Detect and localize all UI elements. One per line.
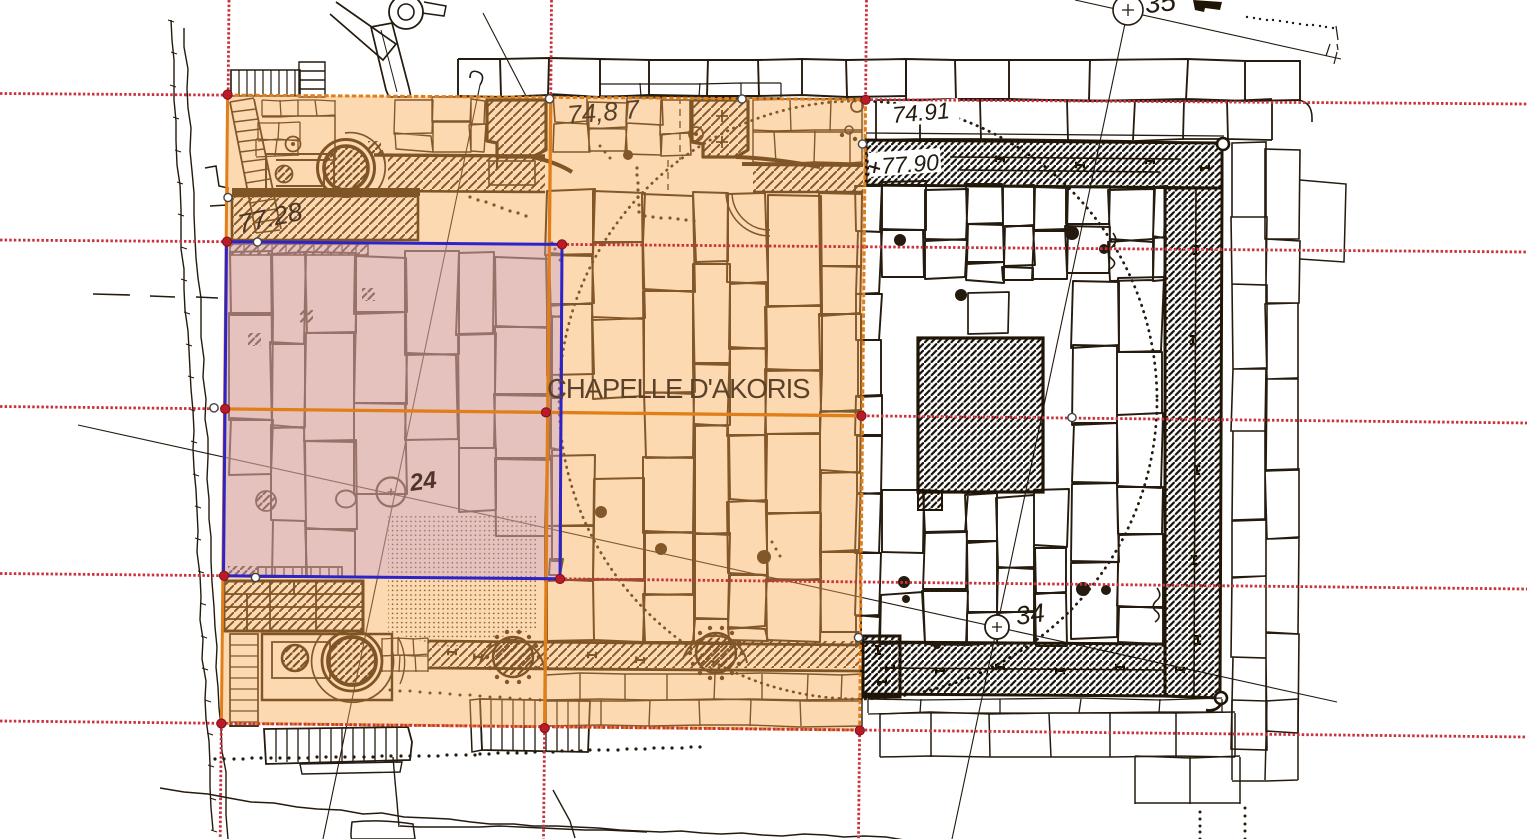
svg-text:24: 24 xyxy=(407,466,438,497)
svg-text:74,8 7: 74,8 7 xyxy=(566,94,642,130)
svg-text:77.90: 77.90 xyxy=(881,149,940,179)
svg-text:34: 34 xyxy=(1014,597,1047,631)
svg-text:CHAPELLE DʹAKORIS: CHAPELLE DʹAKORIS xyxy=(547,373,811,404)
svg-text:35: 35 xyxy=(1143,0,1178,19)
svg-text:74.91: 74.91 xyxy=(891,97,951,128)
